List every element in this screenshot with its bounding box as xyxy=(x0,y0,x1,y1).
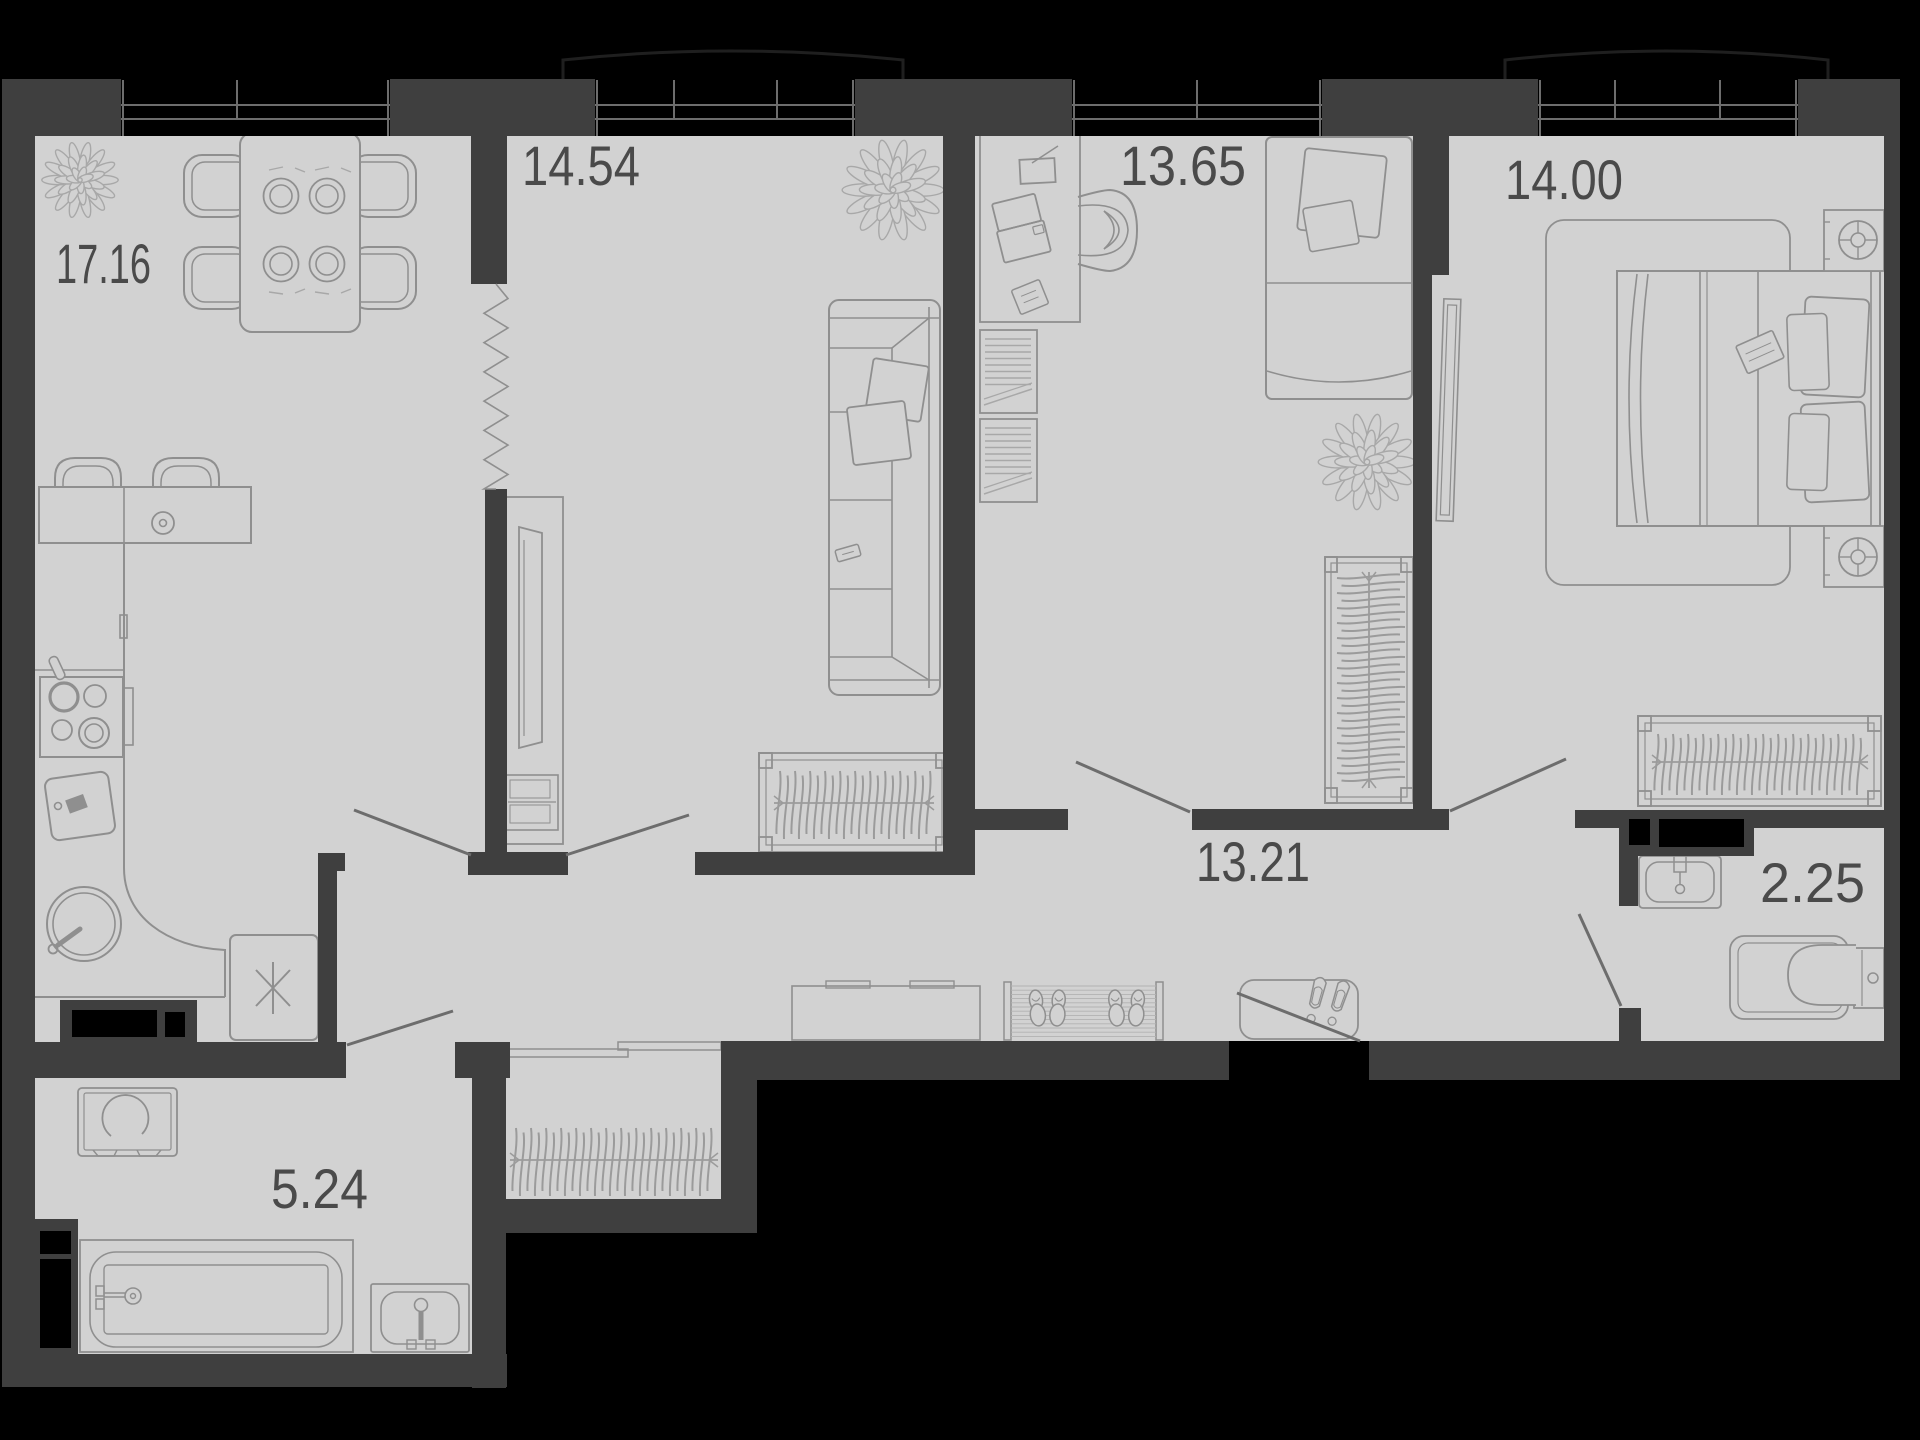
svg-text:13.65: 13.65 xyxy=(1120,134,1246,197)
svg-text:17.16: 17.16 xyxy=(56,232,151,295)
svg-text:5.24: 5.24 xyxy=(271,1157,368,1220)
svg-text:2.25: 2.25 xyxy=(1760,851,1865,914)
svg-text:13.21: 13.21 xyxy=(1196,830,1310,893)
svg-text:14.54: 14.54 xyxy=(522,134,640,197)
svg-text:14.00: 14.00 xyxy=(1505,148,1623,211)
